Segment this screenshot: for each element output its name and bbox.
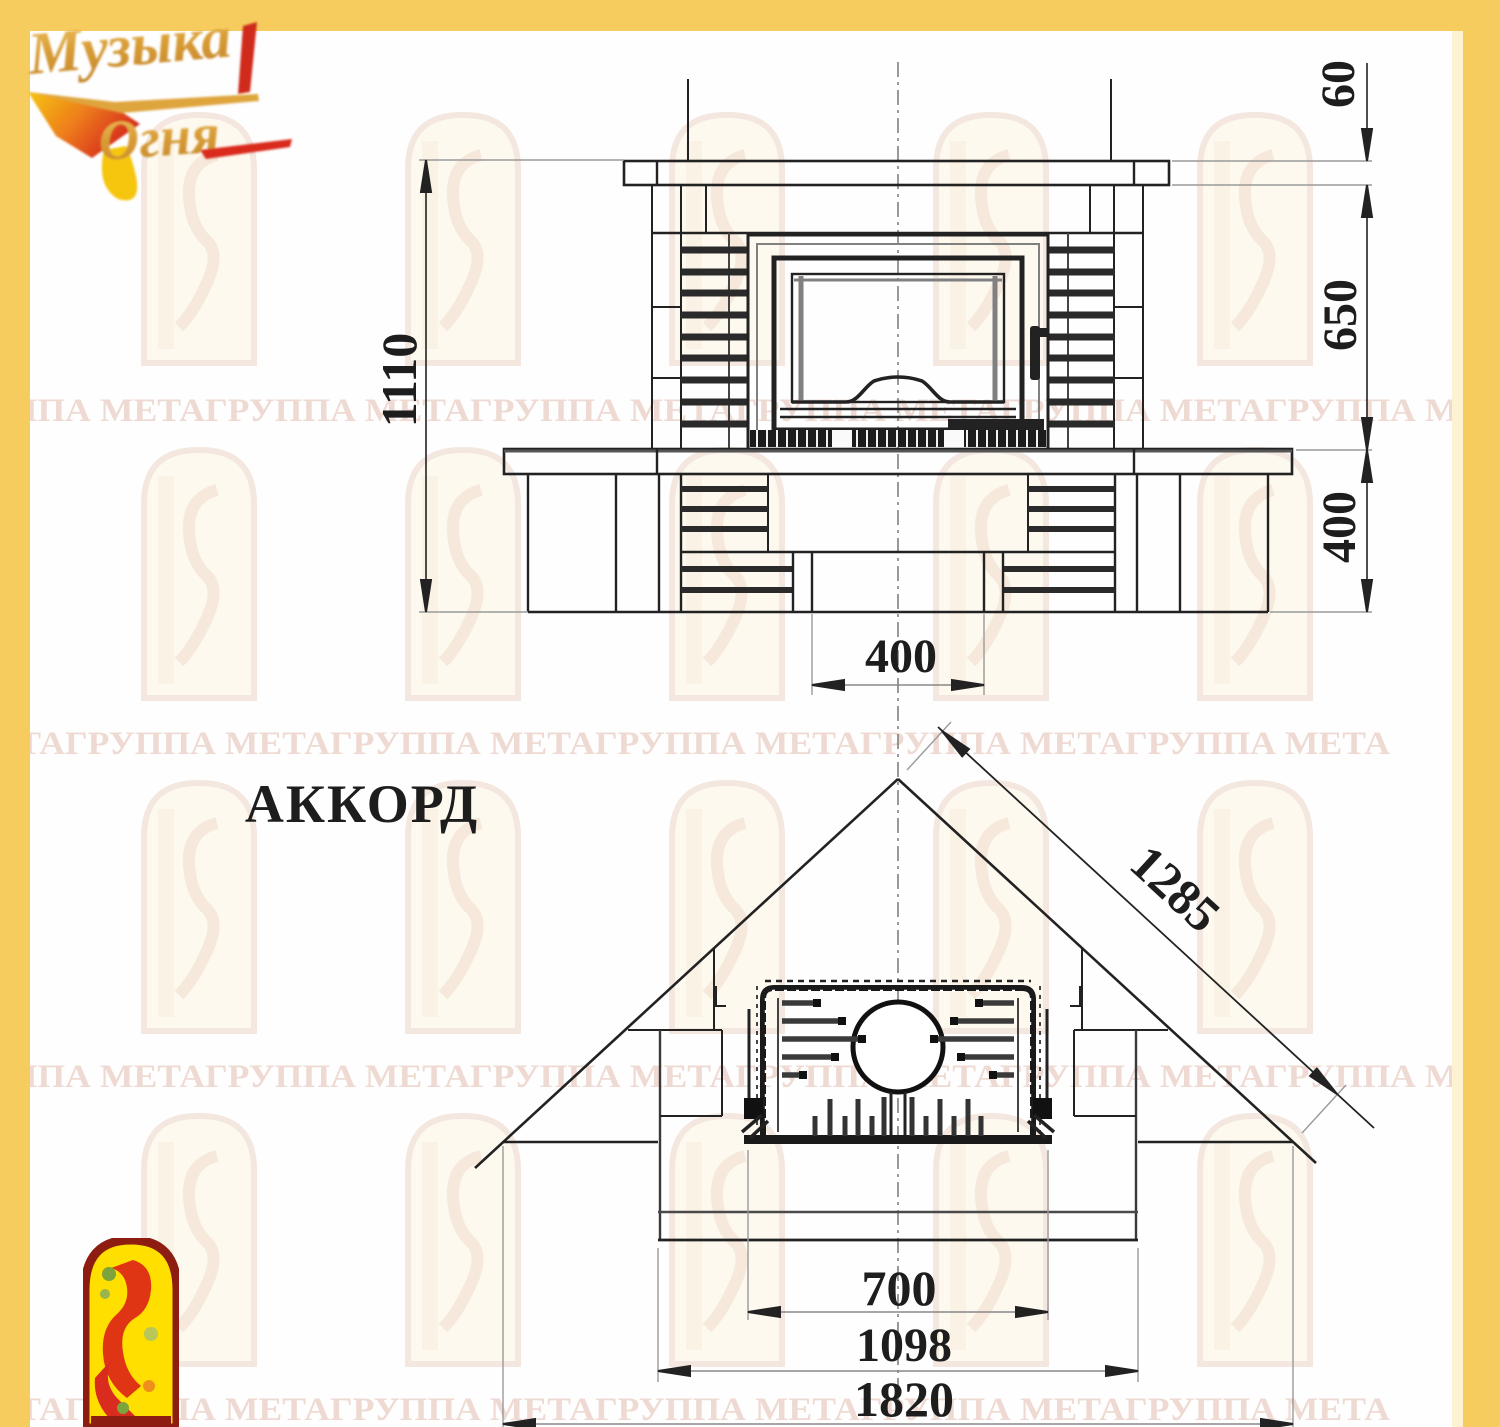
svg-text:1110: 1110	[371, 333, 427, 427]
svg-text:60: 60	[1312, 60, 1365, 108]
svg-text:400: 400	[865, 630, 937, 683]
svg-text:700: 700	[862, 1260, 937, 1316]
svg-text:ГРУППА МЕТАГРУППА МЕТАГРУППА М: ГРУППА МЕТАГРУППА МЕТАГРУППА МЕТАГРУППА …	[0, 1392, 1390, 1427]
svg-text:Огня: Огня	[97, 103, 222, 173]
svg-text:АККОРД: АККОРД	[245, 774, 479, 834]
svg-text:ГРУППА МЕТАГРУППА МЕТАГРУППА М: ГРУППА МЕТАГРУППА МЕТАГРУППА МЕТАГРУППА …	[0, 726, 1390, 762]
svg-text:Музыка: Музыка	[24, 3, 233, 87]
svg-text:ГРУППА МЕТАГРУППА МЕТАГРУППА М: ГРУППА МЕТАГРУППА МЕТАГРУППА МЕТАГРУППА …	[0, 393, 1500, 429]
svg-text:1820: 1820	[854, 1371, 954, 1427]
svg-text:650: 650	[1314, 279, 1367, 351]
svg-text:400: 400	[1313, 491, 1366, 563]
svg-text:1098: 1098	[856, 1319, 952, 1372]
